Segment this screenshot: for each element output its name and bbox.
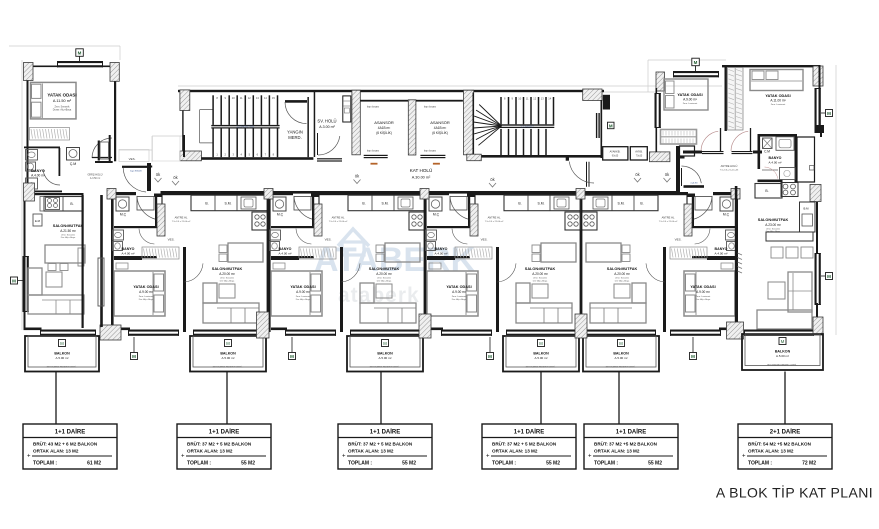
svg-text:A.4.00 m²: A.4.00 m² <box>768 161 781 165</box>
svg-text:B.: B. <box>362 202 365 206</box>
svg-text:BRÜT: 54 M2 +5 M2 BALKON: BRÜT: 54 M2 +5 M2 BALKON <box>748 441 812 447</box>
svg-text:A BLOK TİP KAT PLANI: A BLOK TİP KAT PLANI <box>716 484 873 501</box>
svg-text:YATAK ODASI: YATAK ODASI <box>290 285 315 289</box>
svg-text:A.20.00 m²: A.20.00 m² <box>376 272 392 276</box>
svg-text:A.11.00 m²: A.11.00 m² <box>770 99 785 103</box>
svg-text:TOPLAM :: TOPLAM : <box>187 461 211 467</box>
svg-text:TOPLAM :: TOPLAM : <box>492 461 516 467</box>
svg-text:ORTAK ALAN: 13 M2: ORTAK ALAN: 13 M2 <box>748 449 794 454</box>
svg-text:BANYO: BANYO <box>715 247 728 251</box>
svg-text:1+1 DAİRE: 1+1 DAİRE <box>370 429 401 436</box>
svg-text:M: M <box>694 60 698 65</box>
svg-text:72 M2: 72 M2 <box>802 461 816 467</box>
svg-text:Dvr: Alçı+Boya: Dvr: Alçı+Boya <box>296 298 311 301</box>
svg-text:1+1 DAİRE: 1+1 DAİRE <box>55 429 86 436</box>
svg-text:BETONARME PARAPET ÜZERİ...: BETONARME PARAPET ÜZERİ... <box>370 366 401 369</box>
svg-text:Zmn: Laminant: Zmn: Laminant <box>139 295 154 298</box>
svg-text:A.5.00 m²: A.5.00 m² <box>55 356 68 360</box>
svg-text:ANTRE HOLÜ: ANTRE HOLÜ <box>721 164 738 168</box>
svg-text:BETONARME PARAPET ÜZERİ...: BETONARME PARAPET ÜZERİ... <box>47 366 78 369</box>
svg-text:ORTAK ALAN: 13 M2: ORTAK ALAN: 13 M2 <box>492 449 538 454</box>
svg-text:KAT HOLÜ: KAT HOLÜ <box>410 167 433 173</box>
svg-text:YATAK ODASI: YATAK ODASI <box>677 93 702 97</box>
svg-text:A.20.00 m²: A.20.00 m² <box>532 272 548 276</box>
svg-text:M: M <box>827 111 831 116</box>
svg-text:Dvr: Alçı+Boya: Dvr: Alçı+Boya <box>533 279 548 282</box>
svg-text:SV. HOLÜ: SV. HOLÜ <box>317 119 336 124</box>
svg-text:VES.: VES. <box>675 238 682 242</box>
svg-text:A.9.00 m²: A.9.00 m² <box>696 290 710 294</box>
svg-text:A.3.50 m²: A.3.50 m² <box>90 177 101 180</box>
svg-text:M: M <box>539 341 543 346</box>
svg-text:70x35: 70x35 <box>636 155 643 158</box>
svg-text:TOPLAM :: TOPLAM : <box>33 461 57 467</box>
svg-text:BALKON: BALKON <box>220 352 236 356</box>
svg-text:Zmn: Laminant: Zmn: Laminant <box>696 295 711 298</box>
svg-text:Ç.M: Ç.M <box>70 162 77 166</box>
svg-text:M: M <box>132 354 136 359</box>
svg-text:(6 KİŞİLİK): (6 KİŞİLİK) <box>376 130 392 135</box>
svg-text:ORTAK ALAN: 13 M2: ORTAK ALAN: 13 M2 <box>33 449 79 454</box>
svg-text:ANTRE HL: ANTRE HL <box>175 216 188 220</box>
svg-text:A.20.00 m²: A.20.00 m² <box>614 272 630 276</box>
svg-text:Zmn: Seramik: Zmn: Seramik <box>220 277 235 280</box>
svg-text:2+1 DAİRE: 2+1 DAİRE <box>770 429 801 436</box>
svg-text:YATAK ODASI: YATAK ODASI <box>446 285 471 289</box>
svg-text:A.5.00 m²: A.5.00 m² <box>221 356 234 360</box>
svg-text:B.M: B.M <box>804 207 810 211</box>
svg-text:A.5.00 m²: A.5.00 m² <box>614 356 627 360</box>
svg-text:55 M2: 55 M2 <box>241 461 255 467</box>
svg-text:A.3.00 m²: A.3.00 m² <box>319 125 335 129</box>
svg-text:M: M <box>619 341 623 346</box>
svg-text:+: + <box>181 454 185 460</box>
svg-text:ASANSÖR: ASANSÖR <box>430 120 450 125</box>
svg-text:BETONARME PARAPET ÜZERİ...: BETONARME PARAPET ÜZERİ... <box>526 366 557 369</box>
svg-text:M.Ç: M.Ç <box>277 213 284 217</box>
svg-text:M: M <box>781 339 785 344</box>
svg-text:+: + <box>27 454 31 460</box>
svg-text:A.5.00 m²: A.5.00 m² <box>378 356 391 360</box>
svg-text:A.9.00 m²: A.9.00 m² <box>139 290 153 294</box>
svg-text:+: + <box>342 454 346 460</box>
svg-text:S.M.: S.M. <box>618 202 625 206</box>
svg-text:1 2 3 4 5 6 7 8 9: 1 2 3 4 5 6 7 8 9 <box>236 126 254 129</box>
svg-text:M: M <box>691 354 695 359</box>
svg-text:SALON•MUTFAK: SALON•MUTFAK <box>212 267 243 271</box>
svg-text:M: M <box>609 123 613 128</box>
svg-text:S.M.: S.M. <box>225 202 232 206</box>
svg-text:1+1 DAİRE: 1+1 DAİRE <box>209 429 240 436</box>
svg-text:E.M: E.M <box>35 219 41 223</box>
svg-text:kapı boyası: kapı boyası <box>367 106 380 109</box>
svg-text:M.Ç: M.Ç <box>723 213 730 217</box>
svg-text:A.4.00 m²: A.4.00 m² <box>31 174 45 178</box>
svg-text:BANYO: BANYO <box>279 247 292 251</box>
svg-text:Dvr: Alçı+Boya: Dvr: Alçı+Boya <box>61 236 76 239</box>
svg-text:BANYO: BANYO <box>122 247 135 251</box>
svg-text:AYKB.: AYKB. <box>635 150 643 154</box>
svg-text:61 M2: 61 M2 <box>87 461 101 467</box>
svg-text:A.5.00 m²: A.5.00 m² <box>776 354 789 358</box>
svg-text:7.5+3.5+21+41+45: 7.5+3.5+21+41+45 <box>720 169 739 171</box>
svg-text:Zmn: Seramik: Zmn: Seramik <box>615 277 630 280</box>
svg-text:YATAK ODASI: YATAK ODASI <box>47 93 76 98</box>
svg-text:Zmn: Seramik: Zmn: Seramik <box>377 277 392 280</box>
svg-text:Zmn: Seramik: Zmn: Seramik <box>533 277 548 280</box>
svg-text:YATAK ODASI: YATAK ODASI <box>690 285 715 289</box>
svg-text:+: + <box>486 454 490 460</box>
svg-text:Dvr: Alçı+Boya: Dvr: Alçı+Boya <box>139 298 154 301</box>
svg-text:ORTAK ALAN: 13 M2: ORTAK ALAN: 13 M2 <box>348 449 394 454</box>
svg-text:BRÜT: 37 M2 + 5 M2 BALKON: BRÜT: 37 M2 + 5 M2 BALKON <box>492 441 557 447</box>
svg-text:AYAKKB.: AYAKKB. <box>610 150 621 154</box>
svg-text:B.: B. <box>640 202 643 206</box>
svg-text:Zmn: Laminant: Zmn: Laminant <box>683 102 698 105</box>
svg-text:BRÜT: 37 M2 + 5 M2 BALKON: BRÜT: 37 M2 + 5 M2 BALKON <box>187 441 252 447</box>
svg-text:Duvar: Alçı+Boya: Duvar: Alçı+Boya <box>53 108 72 111</box>
svg-text:Zmn: Laminant: Zmn: Laminant <box>452 295 467 298</box>
svg-text:ANTRE HL: ANTRE HL <box>662 216 675 220</box>
svg-text:SALON•MUTFAK: SALON•MUTFAK <box>53 224 84 228</box>
svg-text:ASANSÖR: ASANSÖR <box>374 120 394 125</box>
svg-text:(6 KİŞİLİK): (6 KİŞİLİK) <box>432 130 448 135</box>
svg-text:VES.: VES. <box>168 238 175 242</box>
svg-text:Dvr: Alçı+Boya: Dvr: Alçı+Boya <box>615 279 630 282</box>
svg-text:7.5+3.5 = 21.00 m²: 7.5+3.5 = 21.00 m² <box>659 220 678 223</box>
svg-text:B.: B. <box>70 202 73 206</box>
svg-text:M: M <box>78 50 82 55</box>
svg-text:7.5+3.5 = 21.00 m²: 7.5+3.5 = 21.00 m² <box>172 220 191 223</box>
svg-text:M: M <box>12 278 16 283</box>
svg-text:S.M.: S.M. <box>382 202 389 206</box>
svg-text:1 2 3 4 5 6 7: 1 2 3 4 5 6 7 <box>520 125 534 128</box>
svg-text:BALKON: BALKON <box>613 352 629 356</box>
svg-text:A.9.00 m²: A.9.00 m² <box>683 98 697 102</box>
svg-text:SALON•MUTFAK: SALON•MUTFAK <box>607 267 638 271</box>
svg-text:SALON•MUTFAK: SALON•MUTFAK <box>525 267 556 271</box>
svg-text:A.4.00 m²: A.4.00 m² <box>278 252 291 256</box>
svg-text:MERD.: MERD. <box>288 135 302 140</box>
svg-text:A.4.00 m²: A.4.00 m² <box>434 252 447 256</box>
svg-text:+: + <box>742 454 746 460</box>
svg-text:BETONARME PARAPET ÜZERİ...: BETONARME PARAPET ÜZERİ... <box>606 366 637 369</box>
svg-text:A.4.00 m²: A.4.00 m² <box>714 252 727 256</box>
svg-text:C.M: C.M <box>764 149 770 153</box>
svg-text:4A1B m²: 4A1B m² <box>434 126 446 130</box>
svg-text:BALKON: BALKON <box>377 352 393 356</box>
svg-text:BETONARME PARAPET ÜZERİ...: BETONARME PARAPET ÜZERİ... <box>767 364 798 367</box>
svg-text:M: M <box>60 341 64 346</box>
svg-text:ORTAK ALAN: 13 M2: ORTAK ALAN: 13 M2 <box>594 449 640 454</box>
svg-text:BALKON: BALKON <box>54 352 70 356</box>
svg-text:A.23.00 m²: A.23.00 m² <box>765 223 781 227</box>
svg-text:BRÜT: 37 M2 +5 M2 BALKON: BRÜT: 37 M2 +5 M2 BALKON <box>594 441 658 447</box>
svg-text:M: M <box>488 354 492 359</box>
svg-text:BRÜT: 43 M2 + 6 M2 BALKON: BRÜT: 43 M2 + 6 M2 BALKON <box>33 441 98 447</box>
svg-text:Zmn: Seramik: Zmn: Seramik <box>61 233 76 236</box>
svg-text:A.20.00 m²: A.20.00 m² <box>219 272 235 276</box>
svg-text:VES.: VES. <box>481 238 488 242</box>
svg-text:A.9.00 m²: A.9.00 m² <box>296 290 310 294</box>
svg-text:M.Ç: M.Ç <box>120 213 127 217</box>
svg-text:M: M <box>290 354 294 359</box>
svg-text:M: M <box>226 341 230 346</box>
svg-text:M.Ç: M.Ç <box>433 213 440 217</box>
svg-text:BANYO: BANYO <box>435 247 448 251</box>
svg-text:YATAK ODASI: YATAK ODASI <box>765 94 790 98</box>
svg-text:7.5+3.5 = 21.00 m²: 7.5+3.5 = 21.00 m² <box>329 220 348 223</box>
svg-text:kapı boyası: kapı boyası <box>424 106 437 109</box>
svg-text:YATAK ODASI: YATAK ODASI <box>133 285 158 289</box>
svg-text:A.5.00 m²: A.5.00 m² <box>534 356 547 360</box>
svg-text:Dvr: Alçı+Boya: Dvr: Alçı+Boya <box>220 279 235 282</box>
svg-text:kapı boyası: kapı boyası <box>424 150 437 153</box>
svg-text:S.M.: S.M. <box>538 202 545 206</box>
svg-text:ORTAK ALAN: 13 M2: ORTAK ALAN: 13 M2 <box>187 449 233 454</box>
svg-text:4A1B m²: 4A1B m² <box>378 126 390 130</box>
svg-text:Zmn: Laminant: Zmn: Laminant <box>771 103 786 106</box>
svg-text:A.11.50 m²: A.11.50 m² <box>53 99 72 103</box>
svg-text:+: + <box>588 454 592 460</box>
svg-text:B.: B. <box>205 202 208 206</box>
svg-text:B.: B. <box>765 189 768 193</box>
svg-text:BETONARME PARAPET ÜZERİ...: BETONARME PARAPET ÜZERİ... <box>213 366 244 369</box>
svg-text:SALON•MUTFAK: SALON•MUTFAK <box>369 267 400 271</box>
svg-text:SALON•MUTFAK: SALON•MUTFAK <box>758 218 789 222</box>
svg-text:BRÜT: 37 M2 + 5 M2 BALKON: BRÜT: 37 M2 + 5 M2 BALKON <box>348 441 413 447</box>
svg-text:A.4.00 m²: A.4.00 m² <box>121 252 134 256</box>
svg-text:kapı boyası: kapı boyası <box>367 150 380 153</box>
svg-text:55 M2: 55 M2 <box>402 461 416 467</box>
svg-text:Dvr: Alçı+Boya: Dvr: Alçı+Boya <box>452 298 467 301</box>
svg-text:VES.: VES. <box>129 157 136 161</box>
svg-text:Zmn: Laminant: Zmn: Laminant <box>296 295 311 298</box>
svg-text:TOPLAM :: TOPLAM : <box>594 461 618 467</box>
svg-text:A.21.50 m²: A.21.50 m² <box>60 229 76 233</box>
svg-text:TOPLAM :: TOPLAM : <box>748 461 772 467</box>
svg-text:ANTRE HL: ANTRE HL <box>332 216 345 220</box>
svg-text:BANYO: BANYO <box>769 156 782 160</box>
svg-text:A.9.00 m²: A.9.00 m² <box>452 290 466 294</box>
svg-text:A.30.00 m²: A.30.00 m² <box>412 176 431 180</box>
svg-text:B.: B. <box>518 202 521 206</box>
svg-text:Dvr: Alçı+Boya: Dvr: Alçı+Boya <box>377 279 392 282</box>
svg-text:7.5+3.5 = 21.00 m²: 7.5+3.5 = 21.00 m² <box>485 220 504 223</box>
svg-text:Zmn: Seramik: Zmn: Seramik <box>766 227 781 230</box>
svg-text:VES.: VES. <box>325 238 332 242</box>
svg-text:M: M <box>827 274 831 279</box>
svg-text:M: M <box>383 341 387 346</box>
svg-text:eşik 90: eşik 90 <box>691 183 699 185</box>
svg-text:55 M2: 55 M2 <box>648 461 662 467</box>
svg-text:kapı 90/220: kapı 90/220 <box>130 171 142 173</box>
svg-text:BALKON: BALKON <box>775 350 791 354</box>
svg-text:TOPLAM :: TOPLAM : <box>348 461 372 467</box>
svg-text:BALKON: BALKON <box>533 352 549 356</box>
svg-text:YANGIN: YANGIN <box>287 130 303 135</box>
svg-text:55 M2: 55 M2 <box>546 461 560 467</box>
svg-text:Dvr: Alçı+Boya: Dvr: Alçı+Boya <box>696 298 711 301</box>
svg-text:90x35: 90x35 <box>612 155 619 158</box>
svg-text:1+1 DAİRE: 1+1 DAİRE <box>514 429 545 436</box>
svg-text:1+1 DAİRE: 1+1 DAİRE <box>616 429 647 436</box>
svg-text:ANTRE HL: ANTRE HL <box>488 216 501 220</box>
